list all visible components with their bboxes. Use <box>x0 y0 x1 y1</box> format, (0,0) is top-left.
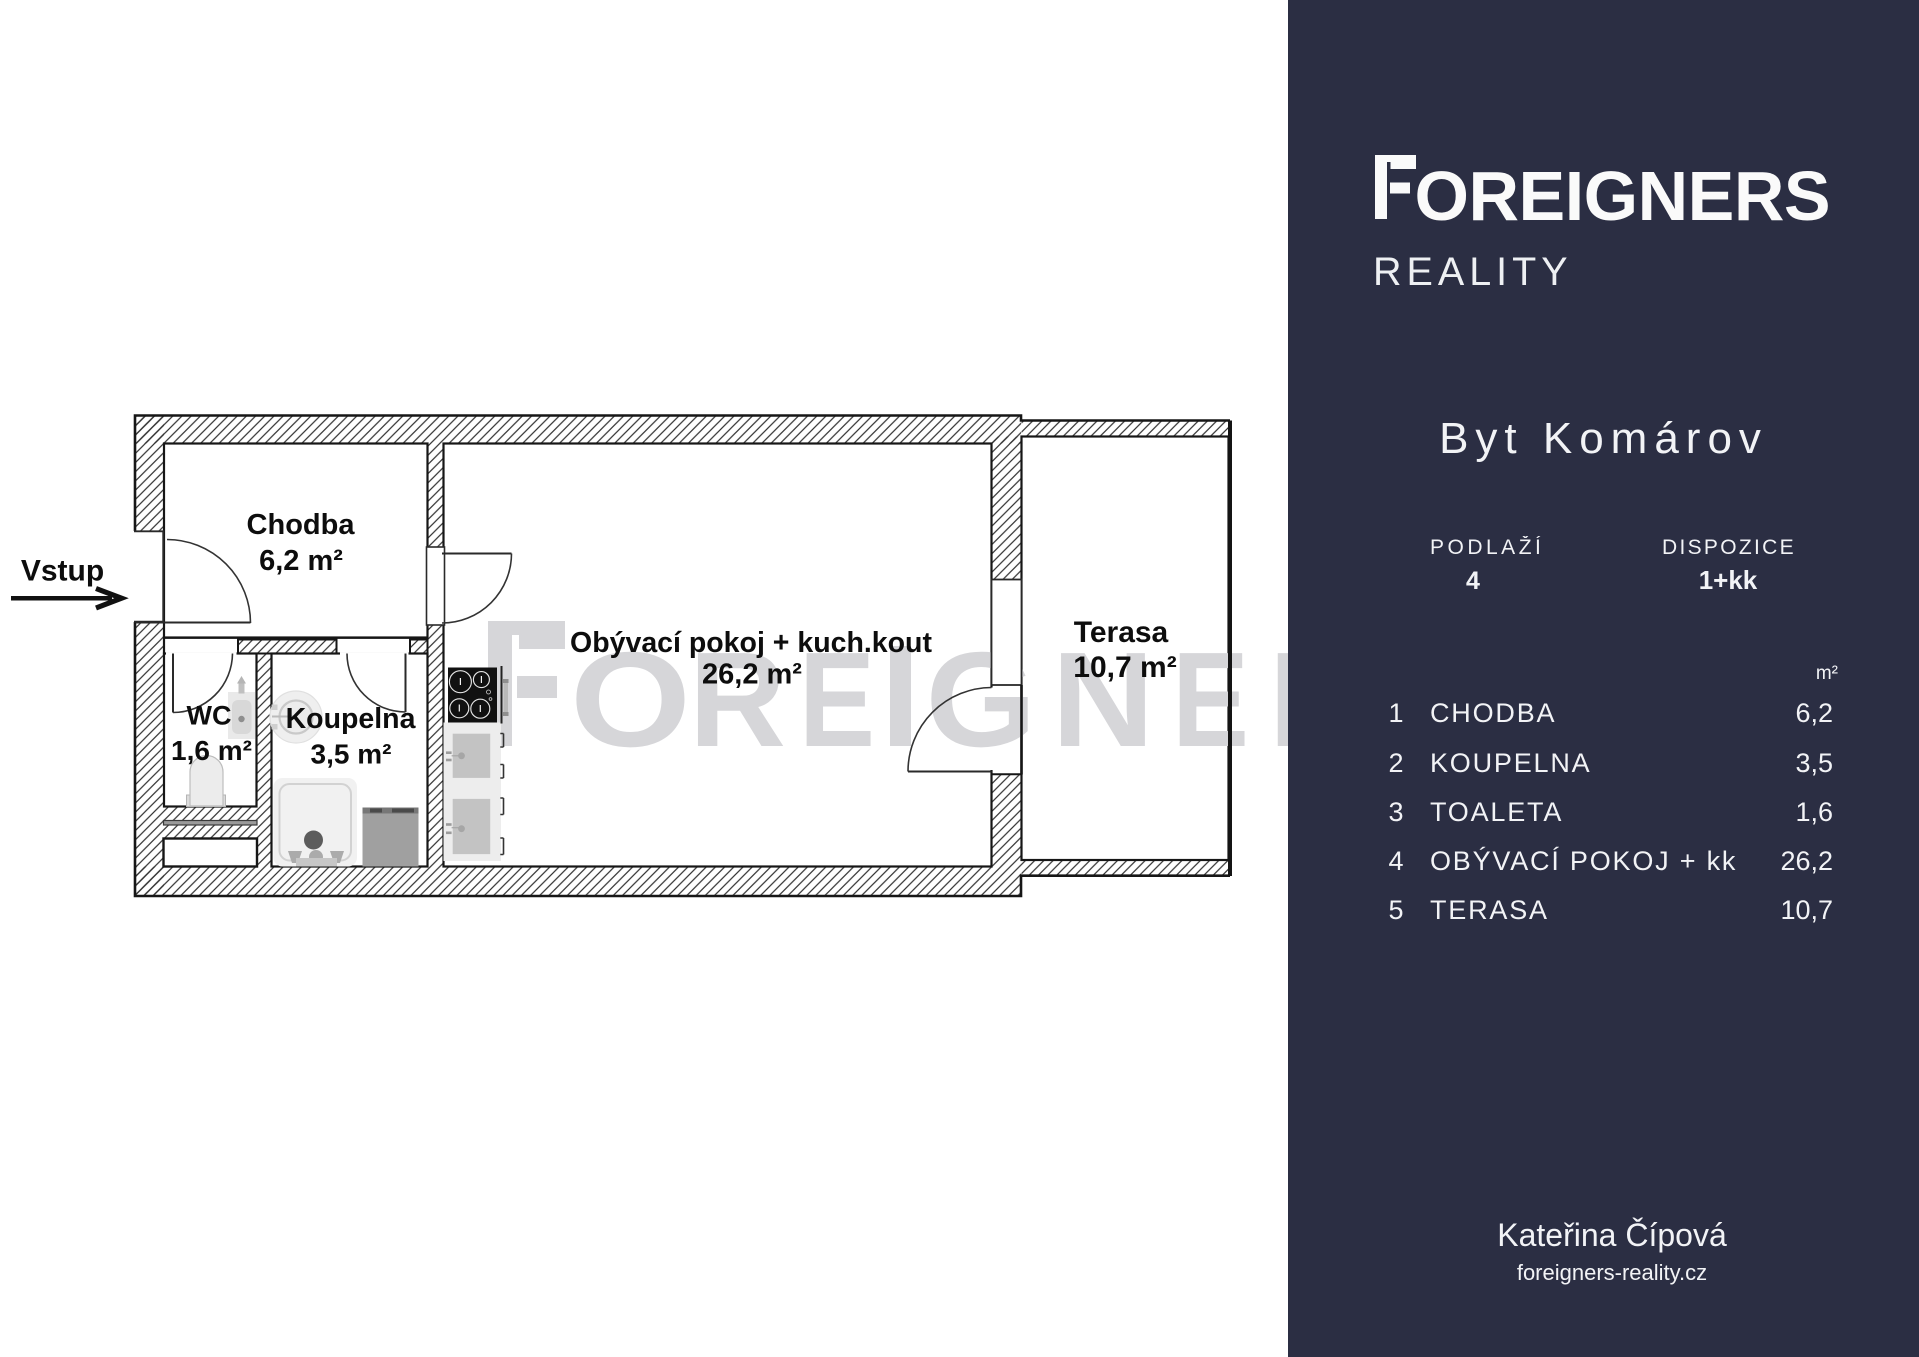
svg-text:WC: WC <box>187 701 232 731</box>
svg-text:26,2 m²: 26,2 m² <box>702 659 802 691</box>
svg-text:6,2 m²: 6,2 m² <box>259 545 343 577</box>
svg-text:1,6 m²: 1,6 m² <box>171 735 252 766</box>
svg-text:Terasa: Terasa <box>1074 616 1169 649</box>
svg-text:E: E <box>1172 624 1249 775</box>
svg-text:Obývací pokoj + kuch.kout: Obývací pokoj + kuch.kout <box>570 627 932 659</box>
svg-text:Koupelna: Koupelna <box>286 703 417 735</box>
svg-text:Chodba: Chodba <box>247 509 356 541</box>
svg-text:Vstup: Vstup <box>21 555 104 588</box>
svg-text:3,5 m²: 3,5 m² <box>311 739 392 770</box>
svg-text:10,7 m²: 10,7 m² <box>1073 651 1176 684</box>
